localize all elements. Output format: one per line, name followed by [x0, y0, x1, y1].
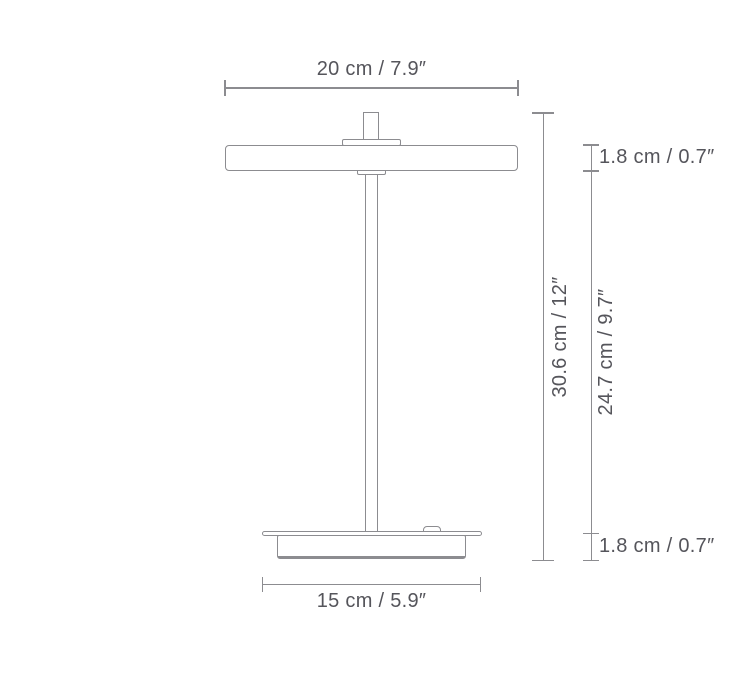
dimension-tick — [583, 170, 599, 172]
lamp-finial — [363, 112, 379, 141]
dimension-tick — [532, 112, 554, 114]
dimension-label-total-height: 30.6 cm / 12″ — [549, 257, 571, 417]
dimension-label-shade-width: 20 cm / 7.9″ — [225, 58, 518, 80]
dimension-line-total-height — [543, 113, 545, 561]
dimension-tick — [583, 144, 599, 146]
dimension-tick — [583, 533, 599, 535]
dimension-label-base-thickness: 1.8 cm / 0.7″ — [599, 535, 714, 557]
dimension-tick — [532, 560, 554, 562]
dimension-label-base-width: 15 cm / 5.9″ — [262, 590, 481, 612]
dimension-label-shade-thickness: 1.8 cm / 0.7″ — [599, 146, 714, 168]
dimension-line-inner — [591, 145, 593, 561]
lamp-base-body — [277, 535, 466, 559]
dimension-line-shade-width — [225, 87, 518, 89]
lamp-stem — [365, 174, 378, 533]
dimension-tick — [224, 80, 226, 96]
lamp-shade — [225, 145, 518, 171]
dimension-line-base-width — [262, 584, 481, 586]
dimension-tick — [517, 80, 519, 96]
dimension-tick — [583, 560, 599, 562]
dimension-diagram: 20 cm / 7.9″ 30.6 cm / 12″ 1.8 cm / 0.7″… — [0, 0, 744, 678]
dimension-label-stem-height: 24.7 cm / 9.7″ — [595, 272, 617, 432]
